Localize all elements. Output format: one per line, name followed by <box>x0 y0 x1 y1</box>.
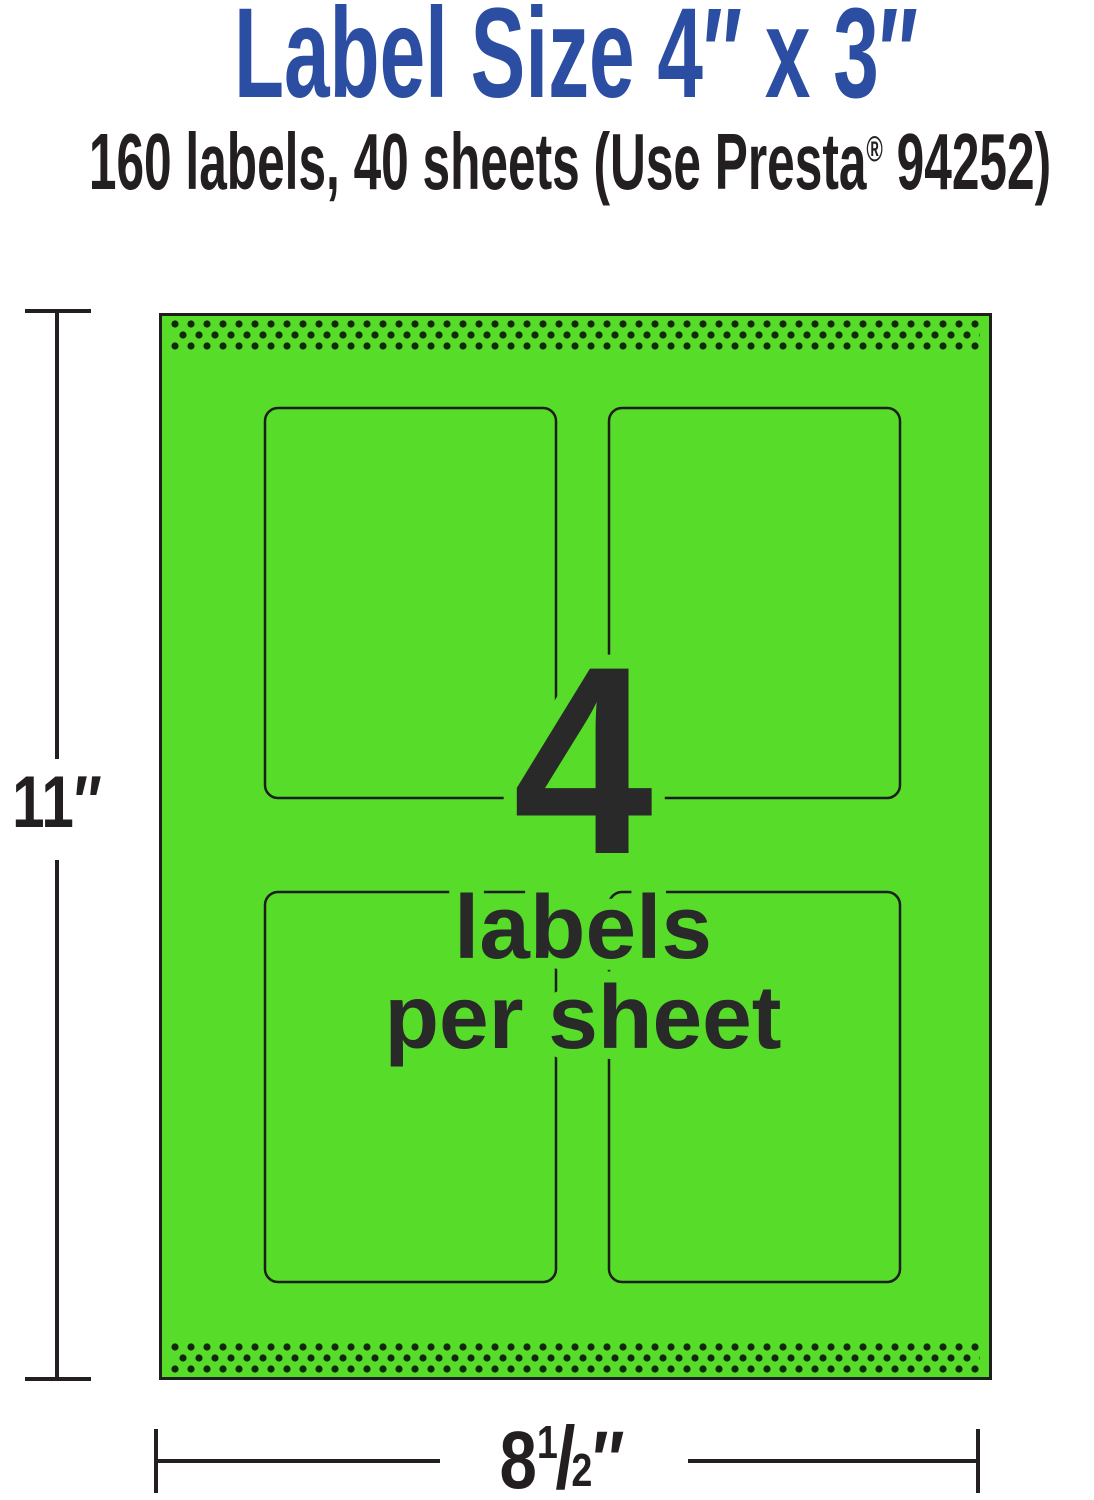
page-title: Label Size 4″ x 3″ <box>234 0 918 118</box>
label-sheet-drawing: 4 labels per sheet <box>159 313 992 1380</box>
perforation-strip-bottom <box>171 1343 980 1373</box>
width-dim-cap-right <box>976 1429 980 1493</box>
width-dim-label: 81/2″ <box>499 1414 624 1500</box>
caption-per-sheet-text: per sheet <box>385 968 782 1068</box>
width-fraction-denominator: 2 <box>571 1444 592 1496</box>
height-dim-cap-bottom <box>25 1377 91 1381</box>
page-subtitle: 160 labels, 40 sheets (Use Presta® 94252… <box>89 122 1051 202</box>
caption-labels-text: labels <box>454 878 712 978</box>
width-unit-mark: ″ <box>592 1415 624 1500</box>
subtitle-text-before: 160 labels, 40 sheets (Use Presta <box>89 117 867 206</box>
subtitle-text-after: 94252) <box>883 117 1051 206</box>
width-dim-line-left <box>154 1459 440 1463</box>
height-dim-line-upper <box>55 309 59 759</box>
width-whole-number: 8 <box>499 1415 536 1500</box>
height-dim-line-lower <box>55 860 59 1380</box>
width-dim-line-right <box>688 1459 978 1463</box>
label-sheet: 4 labels per sheet <box>159 313 992 1380</box>
height-dim-label: 11″ <box>12 766 102 839</box>
perforation-strip-top <box>171 320 980 353</box>
registered-trademark-mark: ® <box>866 128 882 169</box>
label-size-infographic: Label Size 4″ x 3″ 160 labels, 40 sheets… <box>0 0 1094 1500</box>
labels-count-text: 4 <box>513 610 655 910</box>
